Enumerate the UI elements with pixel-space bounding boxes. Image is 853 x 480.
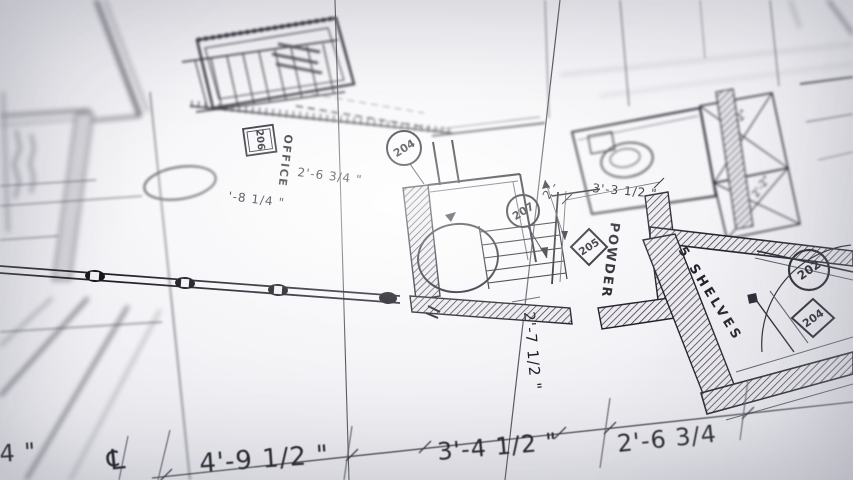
blueprint-photo: 2'-2" 2'-2" [0, 0, 853, 480]
door-jamb [747, 293, 758, 304]
dim-bottom-left-partial: 4 " [0, 437, 37, 468]
centerline-symbol: ℄ [104, 442, 126, 477]
tag-office-number: 206 [253, 129, 266, 151]
